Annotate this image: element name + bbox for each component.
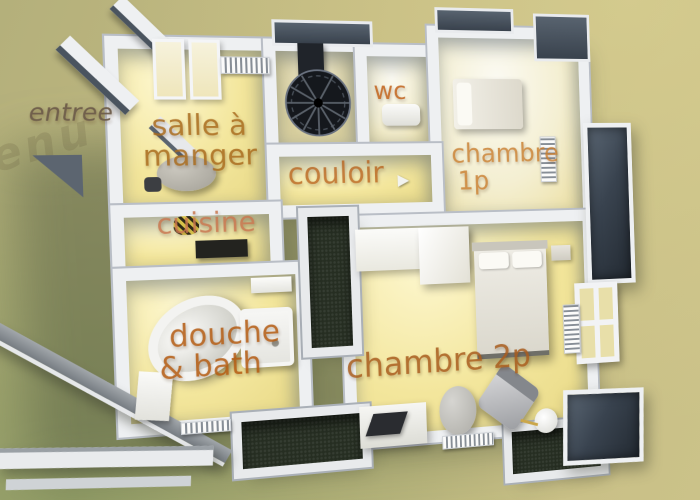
washbasin-wc (382, 104, 421, 126)
radiator-chambre-2p (563, 304, 581, 354)
shelf-unit (574, 281, 620, 364)
label-chambre1p-line2: 1p (452, 167, 560, 196)
shelf-cell (580, 288, 595, 321)
label-wc: wc (373, 78, 407, 104)
radiator-douche (181, 419, 232, 435)
label-chambre1p-line1: chambre (451, 140, 559, 168)
spiral-staircase-icon (280, 65, 356, 140)
radiator-bottom-wall (442, 432, 494, 450)
label-douche-bath: douche & bath (158, 315, 282, 384)
balcony-slab-bottom-left-1 (0, 446, 214, 469)
shelf-cell (600, 325, 615, 358)
balcony-slab-bottom-left-2 (6, 476, 191, 491)
single-bed-pillow (456, 83, 472, 126)
window-recess-right (583, 123, 636, 285)
label-couloir: couloir (287, 157, 384, 189)
apartment-plan: entree salle à manger wc couloir chambre… (9, 8, 635, 500)
bed-pillow-left (479, 252, 509, 270)
kitchen-counter (195, 239, 248, 258)
label-salle-line1: salle à (137, 110, 260, 141)
label-cuisine: cuisine (156, 208, 256, 240)
wall-cap-stair-top (274, 22, 370, 44)
entry-dark-wedge (32, 155, 83, 199)
radiator-salle-a-manger (220, 56, 270, 74)
label-cuisine-text: cuisine (156, 206, 256, 241)
label-salle-line2: manger (138, 140, 261, 172)
window-pane-right-icon (188, 39, 222, 99)
wall-cap-top-right-corner (536, 16, 588, 59)
window-recess-bottom-right (563, 387, 643, 466)
terrace-bottom-left (241, 413, 362, 469)
dining-chair (144, 177, 162, 192)
label-entree: entree (28, 101, 113, 127)
cursor-arrow-icon (398, 175, 410, 187)
bed-pillow-right (512, 251, 542, 268)
bathroom-sink (251, 276, 292, 293)
courtyard-terrace (307, 216, 353, 348)
label-wc-text: wc (373, 76, 407, 105)
label-salle-a-manger: salle à manger (137, 110, 261, 171)
wardrobe-block (418, 226, 470, 284)
label-couloir-text: couloir (287, 155, 384, 191)
shelf-cell (581, 326, 596, 359)
window-pane-left-icon (152, 39, 186, 100)
label-entree-text: entree (28, 99, 113, 127)
shelf-cell (599, 287, 614, 319)
wall-cap-chambre1p-top (437, 10, 511, 31)
round-table (439, 385, 478, 436)
label-chambre-1p: chambre 1p (451, 140, 560, 196)
floorplan-scene: enu (0, 0, 700, 500)
nightstand (551, 245, 571, 261)
